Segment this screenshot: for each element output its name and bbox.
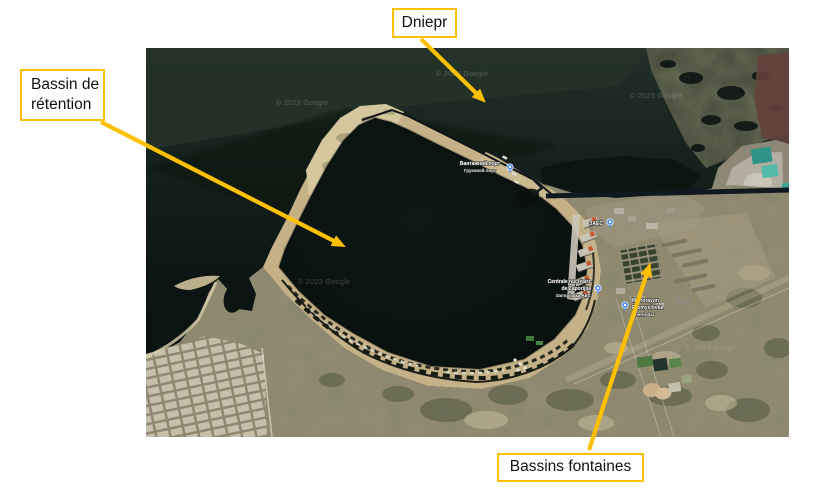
svg-text:© 2023 Google: © 2023 Google bbox=[276, 99, 328, 107]
marker-label: Вантажний порт bbox=[460, 160, 501, 167]
callout-dniepr-label: Dniepr bbox=[402, 13, 448, 33]
svg-text:Centrale nucléaire: Centrale nucléaire bbox=[548, 279, 592, 285]
green-basin bbox=[526, 336, 534, 341]
svg-text:Грузовой порт: Грузовой порт bbox=[464, 167, 497, 173]
svg-text:© 2023 Google: © 2023 Google bbox=[630, 92, 682, 100]
satellite-map-canvas: © 2023 Google © 2023 Google © 2023 Googl… bbox=[146, 48, 789, 437]
svg-text:Запорізька АЕС: Запорізька АЕС bbox=[556, 293, 592, 298]
callout-bassins-fontaines: Bassins fontaines bbox=[497, 453, 644, 482]
callout-bassin-retention: Bassin de rétention bbox=[20, 69, 105, 121]
svg-text:Promyslovka: Promyslovka bbox=[632, 305, 663, 311]
svg-text:de Zaporijjia: de Zaporijjia bbox=[562, 286, 592, 292]
svg-text:Mikrorayon: Mikrorayon bbox=[632, 298, 659, 304]
callout-fontaines-label: Bassins fontaines bbox=[510, 457, 632, 477]
slide: © 2023 Google © 2023 Google © 2023 Googl… bbox=[0, 0, 828, 488]
svg-text:© 2023 Google: © 2023 Google bbox=[686, 344, 738, 352]
svg-text:© 2023 Google: © 2023 Google bbox=[436, 70, 488, 78]
svg-text:ЗАЕС: ЗАЕС bbox=[589, 221, 603, 227]
satellite-image: © 2023 Google © 2023 Google © 2023 Googl… bbox=[146, 48, 789, 437]
svg-text:Enerhodar: Enerhodar bbox=[632, 312, 655, 317]
settling-pond-teal bbox=[751, 147, 773, 165]
callout-bassin-label: Bassin de rétention bbox=[31, 75, 99, 116]
callout-dniepr: Dniepr bbox=[392, 8, 457, 38]
spray-ponds bbox=[619, 243, 664, 285]
svg-text:© 2023 Google: © 2023 Google bbox=[298, 278, 350, 286]
